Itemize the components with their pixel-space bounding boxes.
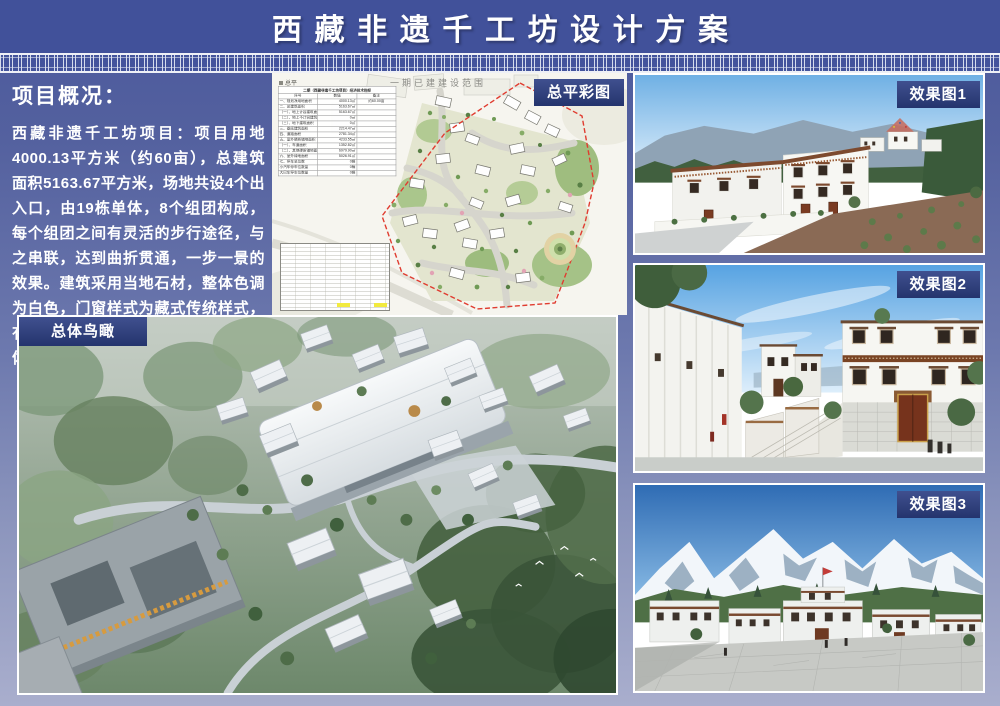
indicators-table-title: 二期（西藏非遗千工坊项目）经济技术指标	[278, 86, 396, 93]
render-3-panel: 效果图3	[633, 483, 985, 693]
right-building	[841, 322, 983, 451]
decorative-meander-border	[0, 53, 1000, 73]
economic-indicators-table: 二期（西藏非遗千工坊项目）经济技术指标 序号 数值 备注 一、规划净用地面积 4…	[278, 86, 396, 176]
aerial-view-panel: 总体鸟瞰	[17, 315, 618, 695]
aerial-view-badge: 总体鸟瞰	[19, 317, 147, 346]
left-building	[635, 294, 744, 471]
render-2-badge: 效果图2	[897, 271, 980, 298]
render-1-panel: 效果图1	[633, 73, 985, 255]
aerial-view-image	[19, 317, 616, 693]
render-1-badge: 效果图1	[897, 81, 980, 108]
square-bullet-icon	[279, 81, 283, 85]
highlight-cell	[374, 303, 387, 307]
overview-heading: 项目概况：	[12, 80, 265, 110]
poster-title: 西藏非遗千工坊设计方案	[259, 5, 740, 49]
circular-garden	[544, 233, 576, 265]
indicators-table-wrap: 二期（西藏非遗千工坊项目）经济技术指标 序号 数值 备注 一、规划净用地面积 4…	[278, 86, 399, 176]
render-3-badge: 效果图3	[897, 491, 980, 518]
table-row: 大巴车停车位数量 0辆	[278, 170, 396, 176]
poster-title-banner: 西藏非遗千工坊设计方案	[0, 0, 1000, 53]
site-plan-drawing-title: 一期已建建设范围	[390, 76, 486, 89]
site-plan-panel: 一期已建建设范围 总平 二期（西藏非遗千工坊项目）经济技术指标 序号 数值 备注	[272, 73, 627, 315]
unit-schedule-table	[280, 243, 390, 311]
site-plan-badge: 总平彩图	[534, 79, 624, 106]
poster-page: 西藏非遗千工坊设计方案 项目概况： 西藏非遗千工坊项目：项目用地4000.13平…	[0, 0, 1000, 706]
highlight-cell	[337, 303, 350, 307]
render-2-panel: 效果图2	[633, 263, 985, 473]
